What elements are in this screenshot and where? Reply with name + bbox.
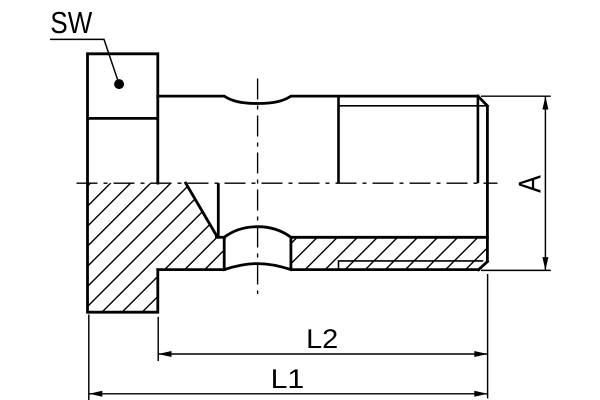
- svg-text:L2: L2: [306, 324, 338, 354]
- svg-text:SW: SW: [50, 6, 92, 40]
- svg-text:A: A: [512, 175, 548, 193]
- svg-text:L1: L1: [271, 364, 305, 394]
